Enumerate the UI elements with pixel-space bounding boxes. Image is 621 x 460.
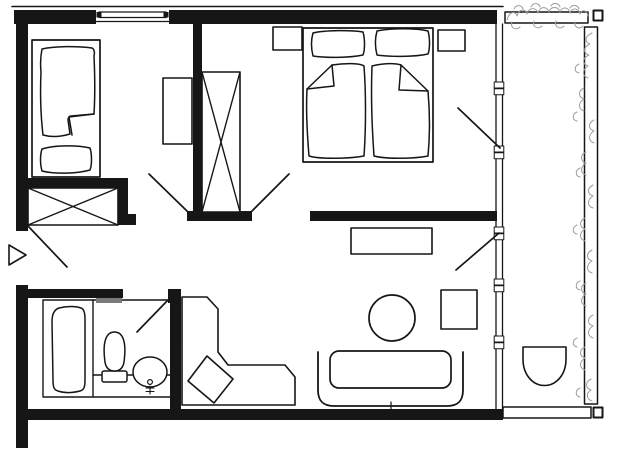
washbasin-drain <box>148 380 153 385</box>
bathroom-shelf <box>96 298 122 303</box>
bathroom-top-wall <box>28 289 123 298</box>
sofa-seat <box>330 351 451 388</box>
bedroom-door-leaf <box>251 174 289 212</box>
living-balcony-door-leaf <box>456 233 499 270</box>
glazing-mullion <box>494 336 504 342</box>
window-end-block-left <box>97 12 102 18</box>
left-room-door-leaf <box>149 174 188 212</box>
balcony-top-post <box>594 11 603 21</box>
nightstand-right <box>438 30 465 51</box>
bottom-wall <box>16 409 503 420</box>
plants-right-2 <box>573 64 580 397</box>
balcony-bottom-post <box>594 408 603 418</box>
single-bed-pillow <box>41 146 92 173</box>
round-table <box>369 295 415 341</box>
glazing-mullion <box>494 89 504 95</box>
entry-door-leaf <box>28 226 67 267</box>
top-wall-right <box>169 10 497 24</box>
bedroom-living-wall <box>310 211 497 221</box>
entry-arrow <box>9 245 26 265</box>
glazing-mullion <box>494 343 504 349</box>
bedroom-balcony-door-leaf <box>458 108 500 148</box>
sideboard <box>351 228 432 254</box>
closet-wall-notch <box>128 214 136 225</box>
balcony-bottom-rail <box>503 407 591 418</box>
glazing-mullion <box>494 227 504 233</box>
balcony-side-rail <box>585 27 598 404</box>
toilet-bowl <box>104 332 125 371</box>
left-room-shelf <box>163 78 192 144</box>
glazing-mullion <box>494 286 504 292</box>
glazing-mullion <box>494 153 504 159</box>
window-end-block-right <box>164 12 169 18</box>
double-bed-pillow-left <box>312 31 365 58</box>
left-wall-upper <box>16 10 28 231</box>
balcony-chair <box>523 347 566 386</box>
square-chair <box>441 290 477 329</box>
toilet-tank <box>102 371 127 382</box>
floor-plan-svg <box>0 0 621 460</box>
left-wall-lower <box>16 285 28 448</box>
double-bed-pillow-right <box>376 29 430 57</box>
window-glazing-bar <box>99 12 166 18</box>
glazing-mullion <box>494 279 504 285</box>
bathtub <box>52 307 85 393</box>
glazing-mullion <box>494 82 504 88</box>
nightstand-left <box>273 27 302 50</box>
bathroom-door-leaf <box>137 300 168 332</box>
center-partition-wall <box>193 24 202 213</box>
floor-plan <box>0 0 621 460</box>
